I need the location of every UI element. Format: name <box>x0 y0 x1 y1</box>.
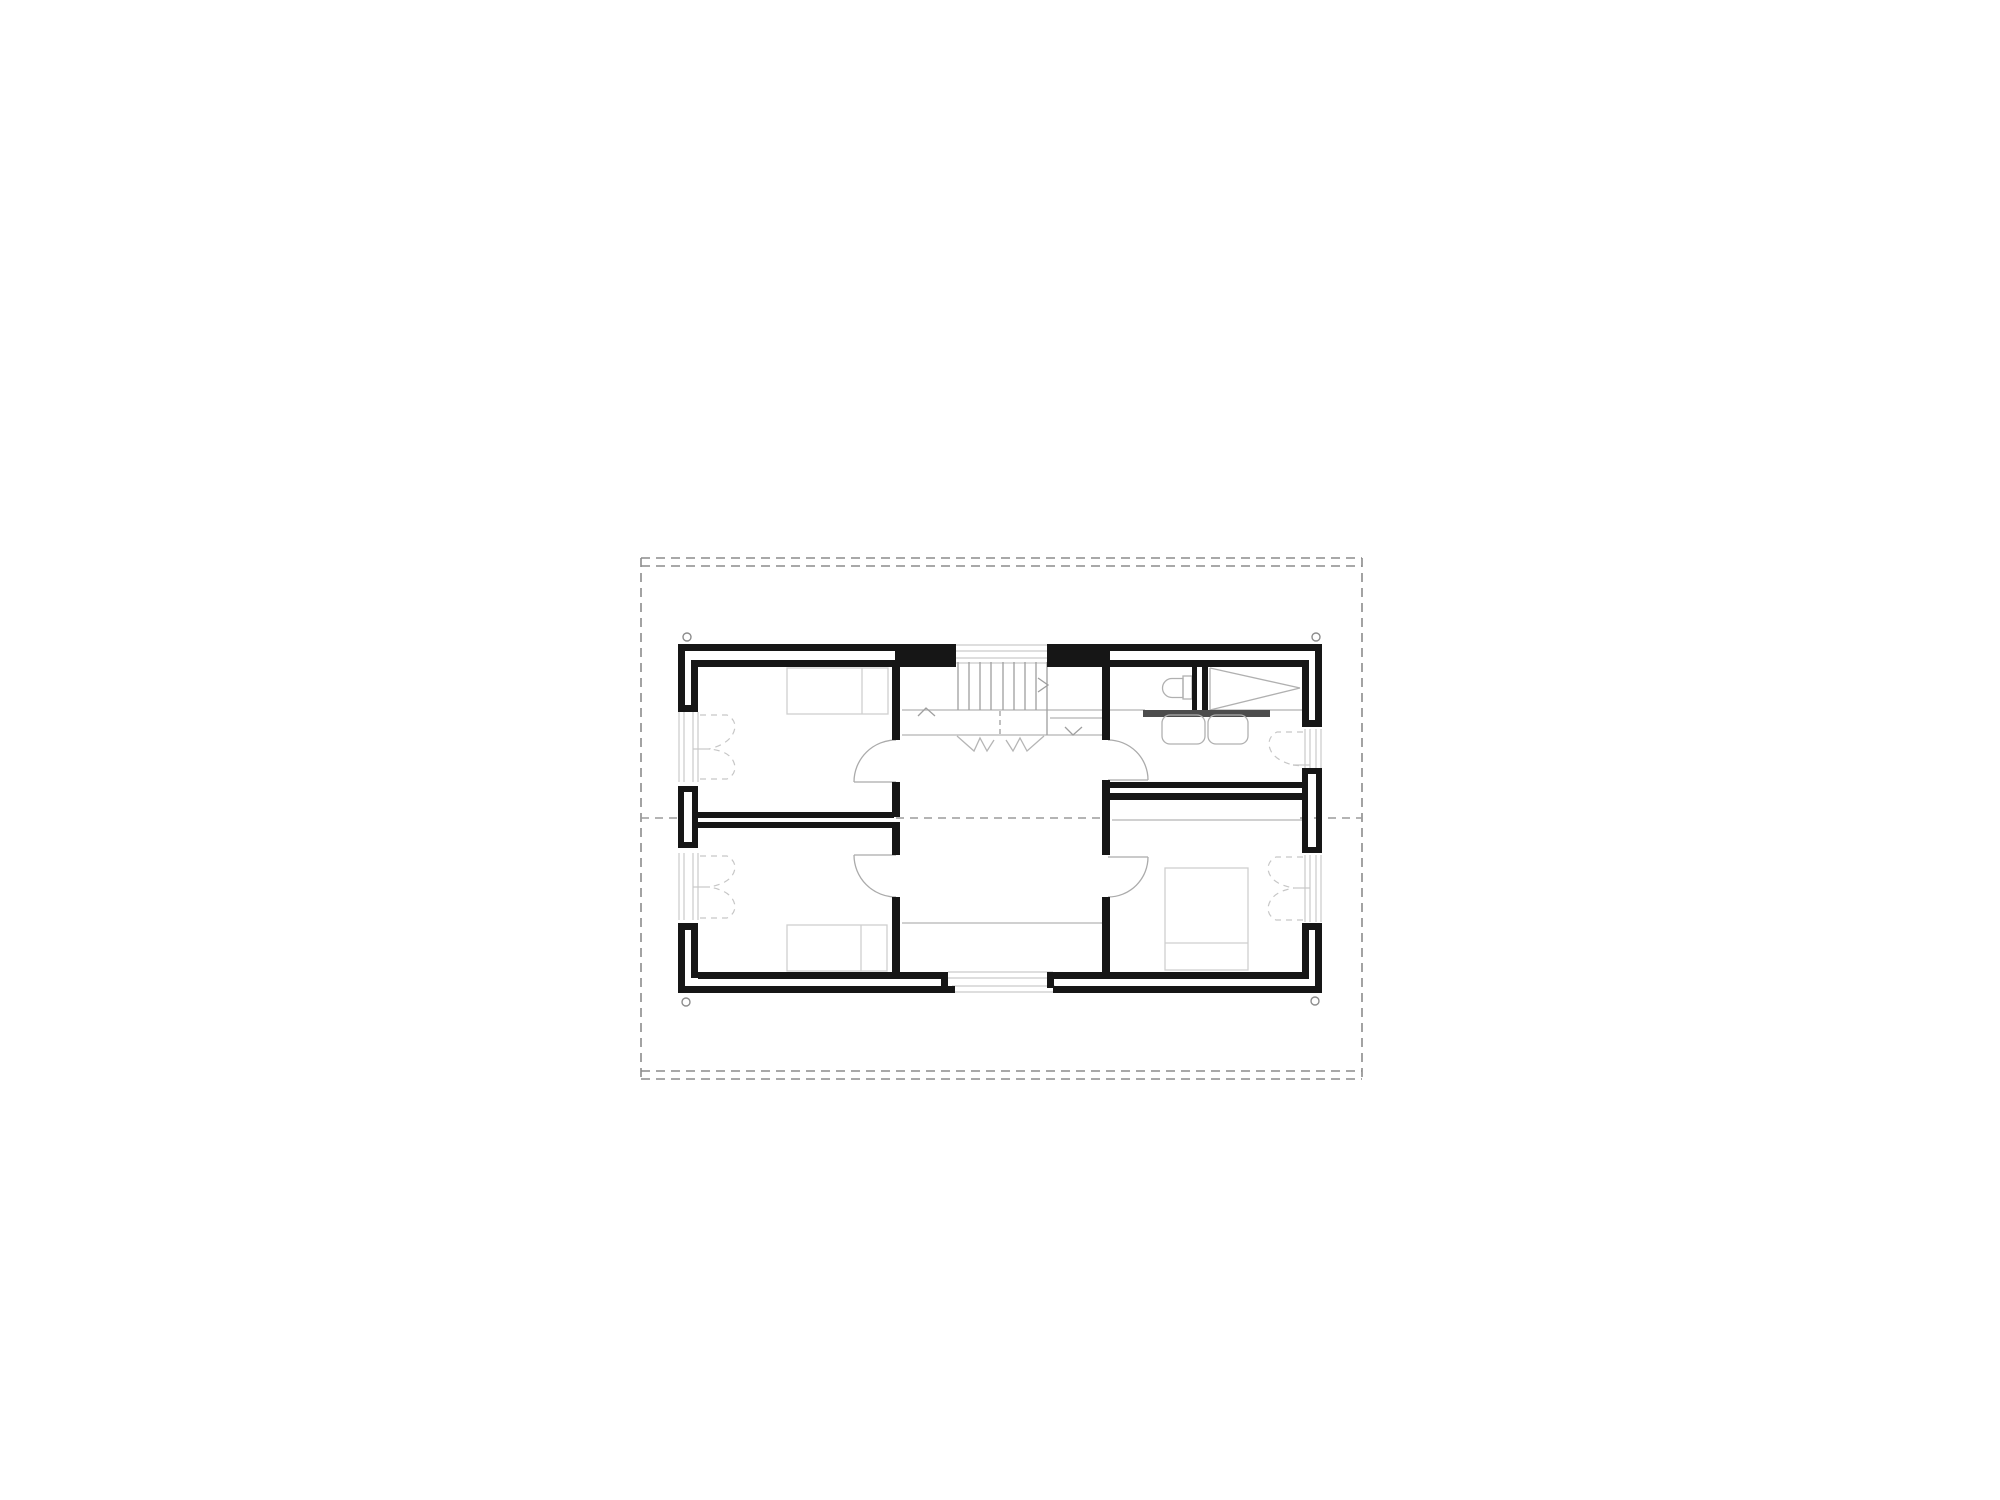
floor-plan-drawing <box>0 0 2000 1500</box>
floor-plan-canvas <box>0 0 2000 1500</box>
wall-bottom-outer-left <box>683 986 955 993</box>
stair-break-line <box>957 736 1044 751</box>
stair-treads <box>969 662 1036 710</box>
casement-top-left-window <box>700 715 735 779</box>
staircase <box>918 662 1082 751</box>
wall-hall-west-upper <box>892 660 900 740</box>
wall-bathroom-south <box>1102 782 1308 788</box>
wall-room2-south <box>698 972 900 979</box>
bed-top-left <box>787 668 888 714</box>
washbasin-counter <box>1143 710 1270 717</box>
wall-room1-north <box>698 660 900 667</box>
stair-chevron-up <box>918 708 935 716</box>
wall-hall-west-lower <box>892 897 900 979</box>
wall-bottom-outer-right <box>1053 986 1322 993</box>
wall-stair-block-left <box>895 644 956 667</box>
wall-stair-block-right <box>1047 644 1110 667</box>
bed-bottom-right <box>1165 868 1248 970</box>
roof-overhang-outline <box>641 558 1362 1080</box>
casement-bathroom-window <box>1269 732 1303 766</box>
room-hall-landing <box>900 667 1102 972</box>
drain-circle-top-right <box>1312 633 1320 641</box>
drain-circle-bottom-right <box>1311 997 1319 1005</box>
door-bedroom-top-left <box>854 740 896 782</box>
drain-circle-bottom-left <box>682 998 690 1006</box>
door-bathroom <box>1108 740 1148 780</box>
wall-room2-north <box>698 822 894 828</box>
bed-bottom-left <box>787 925 887 971</box>
wall-hall-east-lower <box>1102 897 1110 979</box>
sink-right <box>1208 715 1248 744</box>
wall-bathroom-north <box>1108 660 1308 667</box>
wall-bedroom-br-north <box>1110 793 1303 800</box>
wall-top-right-corner-leg <box>1315 644 1322 727</box>
wall-hall-east-upper <box>1102 660 1110 740</box>
toilet <box>1163 676 1193 699</box>
wall-top-left-corner-leg <box>678 644 685 712</box>
drain-circle-top-left <box>683 633 691 641</box>
door-bedroom-bottom-right <box>1108 857 1148 897</box>
sink-left <box>1162 715 1205 744</box>
wall-bedroom-br-south <box>1110 972 1303 979</box>
shower <box>1210 668 1302 710</box>
wall-room1-south <box>698 812 894 818</box>
stair-chevron-down <box>1065 727 1082 735</box>
door-bedroom-bottom-left <box>854 855 896 897</box>
